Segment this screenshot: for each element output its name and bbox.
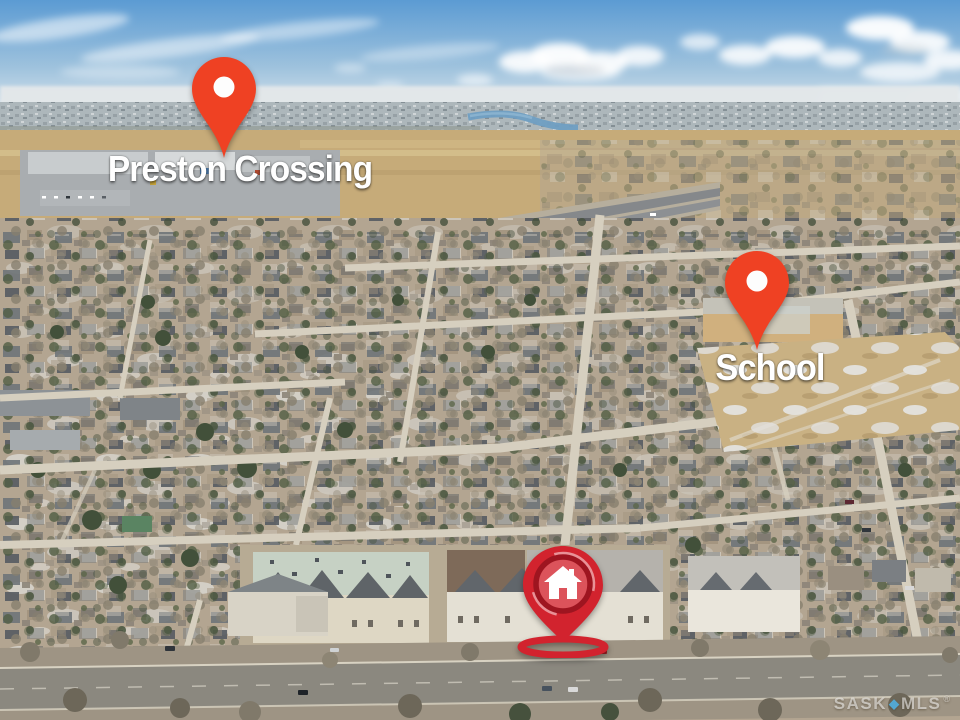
map-pin-icon (724, 250, 790, 352)
pin-hole (214, 77, 235, 98)
watermark-sask: SASK (834, 694, 887, 714)
watermark-mls: MLS (901, 694, 941, 714)
pin-body (192, 57, 256, 158)
real-estate-aerial-photo: Preston Crossing School SASK◆MLS® (0, 0, 960, 720)
preston-crossing-label: Preston Crossing (68, 151, 412, 187)
diamond-icon: ◆ (889, 696, 899, 712)
map-pin-icon (191, 56, 257, 160)
registered-mark: ® (943, 694, 950, 704)
home-pin-icon (513, 542, 613, 658)
school-label: School (670, 349, 871, 386)
watermark: SASK◆MLS® (834, 694, 950, 714)
pin-body (725, 251, 789, 350)
pin-hole (747, 271, 768, 292)
